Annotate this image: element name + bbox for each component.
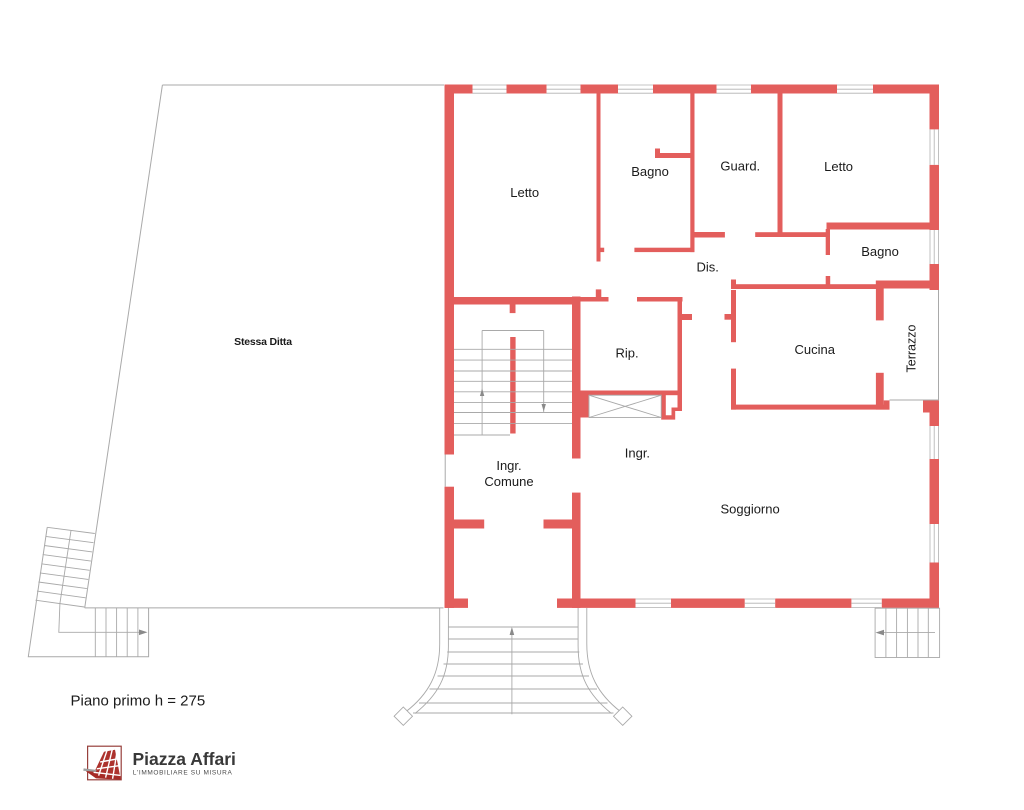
svg-text:Stessa Ditta: Stessa Ditta [234, 336, 292, 348]
svg-text:Piazza Affari: Piazza Affari [133, 749, 236, 769]
svg-text:Piano primo h = 275: Piano primo h = 275 [71, 693, 206, 710]
svg-text:Letto: Letto [510, 185, 539, 200]
svg-text:Dis.: Dis. [697, 260, 719, 275]
svg-text:Bagno: Bagno [861, 244, 899, 259]
svg-text:Comune: Comune [484, 474, 533, 489]
svg-text:Ingr.: Ingr. [625, 446, 650, 461]
svg-text:Rip.: Rip. [615, 346, 638, 361]
svg-text:Cucina: Cucina [794, 342, 835, 357]
svg-text:Guard.: Guard. [720, 159, 760, 174]
svg-text:Letto: Letto [824, 159, 853, 174]
svg-text:Ingr.: Ingr. [496, 458, 521, 473]
svg-text:Bagno: Bagno [631, 164, 669, 179]
svg-text:Terrazzo: Terrazzo [905, 324, 919, 372]
svg-text:Soggiorno: Soggiorno [720, 502, 779, 517]
svg-text:L'IMMOBILIARE SU MISURA: L'IMMOBILIARE SU MISURA [133, 770, 233, 777]
